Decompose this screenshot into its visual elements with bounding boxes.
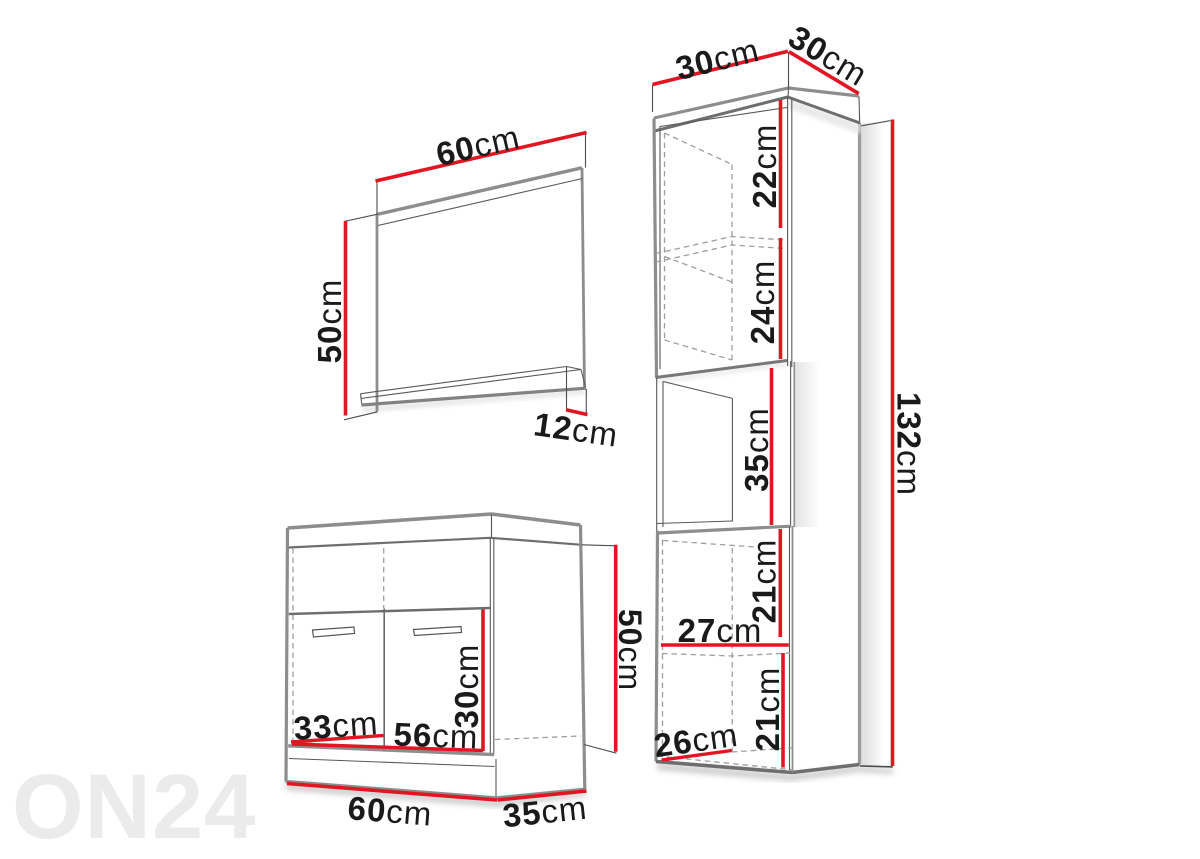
svg-text:60cm: 60cm [346, 789, 433, 833]
svg-text:24cm: 24cm [744, 260, 781, 345]
svg-text:132cm: 132cm [890, 392, 927, 496]
svg-text:ON24: ON24 [12, 756, 256, 858]
svg-text:50cm: 50cm [612, 609, 648, 691]
svg-text:35cm: 35cm [501, 789, 589, 835]
svg-text:60cm: 60cm [432, 118, 523, 173]
svg-text:21cm: 21cm [749, 667, 786, 752]
svg-text:30cm: 30cm [782, 18, 874, 93]
svg-text:12cm: 12cm [532, 405, 621, 453]
svg-text:56cm: 56cm [393, 716, 479, 756]
svg-text:26cm: 26cm [651, 716, 740, 764]
svg-text:35cm: 35cm [738, 407, 775, 492]
svg-text:27cm: 27cm [678, 612, 763, 649]
svg-text:30cm: 30cm [672, 31, 763, 87]
svg-text:22cm: 22cm [746, 124, 783, 209]
svg-text:50cm: 50cm [311, 279, 348, 364]
svg-text:30cm: 30cm [448, 644, 485, 729]
svg-text:21cm: 21cm [746, 539, 783, 624]
svg-text:33cm: 33cm [292, 704, 379, 747]
